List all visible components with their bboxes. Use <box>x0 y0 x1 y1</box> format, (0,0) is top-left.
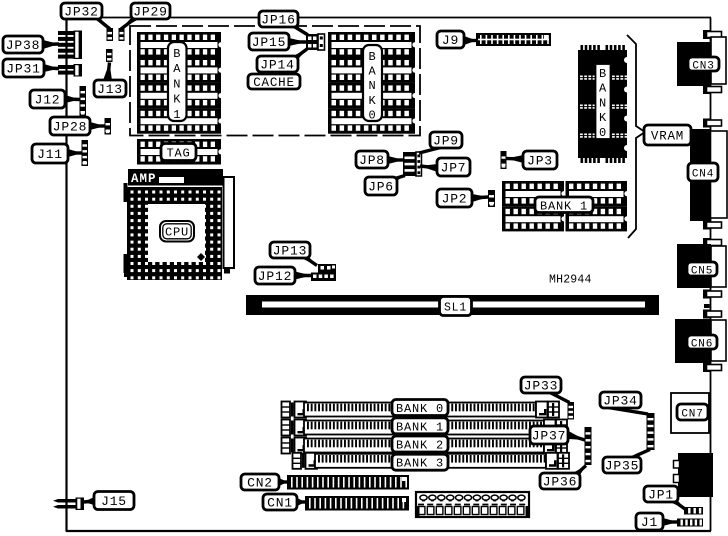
svg-text:J15: J15 <box>101 494 127 509</box>
svg-text:CN6: CN6 <box>691 339 713 351</box>
svg-text:CN2: CN2 <box>247 476 273 491</box>
svg-text:J1: J1 <box>641 515 658 530</box>
svg-text:JP6: JP6 <box>368 180 394 195</box>
svg-text:0: 0 <box>599 126 607 140</box>
svg-text:BANK 2: BANK 2 <box>396 439 444 453</box>
svg-text:K: K <box>173 93 181 107</box>
svg-text:J13: J13 <box>97 82 123 97</box>
svg-text:JP36: JP36 <box>543 475 577 490</box>
svg-text:JP37: JP37 <box>532 429 566 444</box>
svg-text:N: N <box>173 77 181 91</box>
svg-text:JP28: JP28 <box>53 120 87 135</box>
svg-text:CPU: CPU <box>165 226 189 240</box>
svg-text:JP9: JP9 <box>433 134 459 149</box>
svg-text:CN3: CN3 <box>692 61 714 73</box>
svg-text:JP1: JP1 <box>648 488 674 503</box>
svg-text:B: B <box>599 67 607 81</box>
svg-text:A: A <box>368 65 376 79</box>
svg-text:BANK 3: BANK 3 <box>396 457 444 471</box>
svg-text:TAG: TAG <box>166 147 190 161</box>
svg-text:CACHE: CACHE <box>253 76 295 90</box>
svg-text:N: N <box>599 96 607 110</box>
svg-text:J12: J12 <box>35 93 61 108</box>
svg-text:BANK 0: BANK 0 <box>396 402 444 416</box>
svg-text:JP13: JP13 <box>273 244 307 259</box>
svg-text:JP32: JP32 <box>64 5 98 20</box>
svg-text:N: N <box>368 79 376 93</box>
svg-text:K: K <box>599 111 607 125</box>
svg-text:JP38: JP38 <box>6 38 40 53</box>
svg-text:MH2944: MH2944 <box>549 274 592 287</box>
svg-text:JP15: JP15 <box>252 35 286 50</box>
svg-text:JP14: JP14 <box>260 58 294 73</box>
svg-text:BANK 1: BANK 1 <box>396 420 444 434</box>
svg-text:A: A <box>599 82 607 96</box>
svg-text:JP33: JP33 <box>524 379 558 394</box>
svg-text:JP34: JP34 <box>603 394 637 409</box>
svg-text:CN7: CN7 <box>681 409 703 421</box>
svg-text:AMP: AMP <box>131 172 157 186</box>
svg-text:B: B <box>368 50 376 64</box>
svg-text:CN1: CN1 <box>267 496 293 511</box>
svg-text:BANK 1: BANK 1 <box>540 199 588 213</box>
svg-text:JP7: JP7 <box>441 161 467 176</box>
svg-text:JP3: JP3 <box>527 154 553 169</box>
svg-text:SL1: SL1 <box>444 302 467 315</box>
svg-text:JP16: JP16 <box>261 13 295 28</box>
svg-text:J11: J11 <box>37 147 63 162</box>
svg-text:0: 0 <box>368 108 376 122</box>
svg-text:VRAM: VRAM <box>651 130 684 144</box>
svg-text:CN5: CN5 <box>691 266 713 278</box>
svg-text:JP2: JP2 <box>442 192 468 207</box>
svg-text:JP35: JP35 <box>605 459 639 474</box>
svg-text:B: B <box>173 47 181 61</box>
svg-text:JP31: JP31 <box>6 62 40 77</box>
svg-text:1: 1 <box>173 108 181 122</box>
svg-text:K: K <box>368 94 376 108</box>
svg-text:CN4: CN4 <box>692 169 714 181</box>
svg-text:JP8: JP8 <box>359 153 385 168</box>
svg-text:A: A <box>173 62 181 76</box>
svg-text:JP29: JP29 <box>133 5 167 20</box>
svg-text:J9: J9 <box>442 33 459 48</box>
svg-text:JP12: JP12 <box>258 269 292 284</box>
